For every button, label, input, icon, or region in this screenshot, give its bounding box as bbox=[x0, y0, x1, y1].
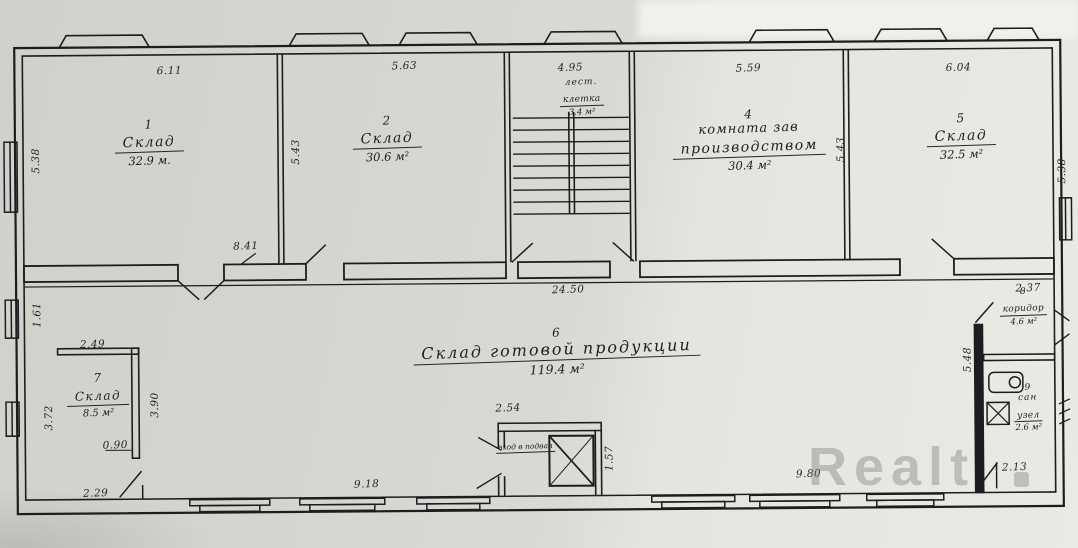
room-9-label: 9 сан узел 2.6 м² bbox=[1013, 382, 1043, 434]
room-number: 5 bbox=[926, 111, 995, 127]
room-area: 8.5 м² bbox=[67, 404, 130, 420]
room-area: 3.4 м² bbox=[560, 105, 604, 118]
room-2-label: 2 Склад 30.6 м² bbox=[352, 113, 422, 164]
stairwell-label: лест. клетка 3.4 м² bbox=[559, 77, 604, 119]
dim-room7-right: 3.90 bbox=[149, 392, 161, 417]
dim-basement-right: 1.57 bbox=[603, 446, 615, 471]
room-1-label: 1 Склад 32.9 м. bbox=[114, 117, 184, 168]
dim-top-stairs: 4.95 bbox=[557, 61, 583, 74]
watermark-dot bbox=[1014, 472, 1029, 487]
staircase bbox=[513, 111, 630, 214]
dim-room7-bottom: 2.29 bbox=[83, 487, 109, 500]
room-name: Склад bbox=[67, 389, 130, 407]
dim-basement-top: 2.54 bbox=[495, 402, 521, 415]
realt-watermark: Realt bbox=[808, 436, 975, 498]
dim-room7-door: 0.90 bbox=[102, 439, 128, 452]
room-area: 32.9 м. bbox=[115, 151, 184, 169]
toilet-icon bbox=[987, 402, 1009, 424]
dim-top-room1: 6.11 bbox=[157, 64, 183, 77]
room-name: коридор bbox=[1000, 303, 1048, 316]
room-name: лест. bbox=[559, 77, 603, 89]
dim-top-room5: 6.04 bbox=[946, 61, 972, 74]
dim-wall-rooms12: 5.43 bbox=[290, 139, 302, 164]
floor-plan-canvas: 1 Склад 32.9 м. 2 Склад 30.6 м² лест. кл… bbox=[0, 0, 1078, 548]
room-number: 2 bbox=[352, 113, 421, 129]
room-5-label: 5 Склад 32.5 м² bbox=[926, 111, 996, 162]
room-7-label: 7 Склад 8.5 м² bbox=[66, 371, 130, 420]
room-number: 1 bbox=[114, 117, 183, 133]
dim-room8-top: 2.37 bbox=[1015, 282, 1041, 295]
room-6-label: 6 Склад готовой продукции 119.4 м² bbox=[413, 322, 701, 382]
windows-sides bbox=[4, 134, 1073, 436]
room-name: вход в подвал bbox=[496, 442, 555, 454]
room-area: 4.6 м² bbox=[1000, 315, 1048, 328]
basement-entry-label: вход в подвал bbox=[496, 434, 555, 454]
room-area: 2.6 м² bbox=[1014, 421, 1043, 434]
dim-room8-left: 5.48 bbox=[962, 347, 974, 372]
room-name: сан bbox=[1013, 393, 1042, 404]
room-area: 30.6 м² bbox=[353, 147, 422, 165]
dim-bottom-left: 9.18 bbox=[354, 478, 380, 491]
dim-corridor-door: 8.41 bbox=[233, 240, 259, 253]
room-name: узел bbox=[1014, 410, 1043, 422]
room-number: 7 bbox=[66, 371, 129, 387]
dim-wall-rooms45: 5.43 bbox=[835, 137, 847, 162]
room-4-label: 4 комната зав производством 30.4 м² bbox=[671, 106, 826, 175]
room-area: 32.5 м² bbox=[927, 145, 996, 163]
dim-top-room2: 5.63 bbox=[391, 60, 417, 73]
dim-hall-length: 24.50 bbox=[552, 283, 585, 296]
dim-left-lower: 1.61 bbox=[31, 302, 43, 327]
dim-room7-top: 2.49 bbox=[80, 338, 106, 351]
dim-top-room4: 5.59 bbox=[735, 62, 761, 75]
room-name: Склад bbox=[352, 129, 421, 149]
room-name: Склад bbox=[114, 133, 183, 153]
room-name: Склад bbox=[926, 127, 995, 147]
dim-right-wall: 5.38 bbox=[1056, 158, 1068, 183]
dim-left-window: 5.38 bbox=[30, 148, 42, 173]
room-name: клетка bbox=[560, 94, 604, 107]
corridor-wall bbox=[24, 258, 1054, 287]
dim-room7-left: 3.72 bbox=[43, 405, 55, 430]
